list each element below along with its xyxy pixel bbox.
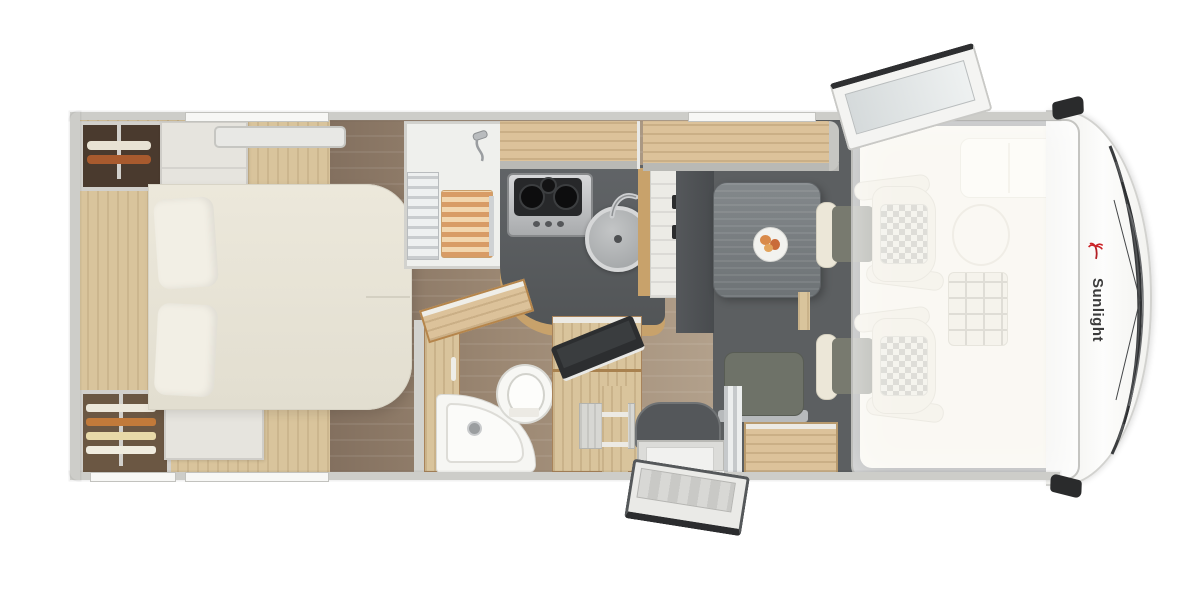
folded-clothes-light: [86, 404, 156, 412]
locker-lip: [500, 161, 637, 169]
bed-seam: [366, 296, 410, 298]
window-strip: [185, 112, 329, 122]
sink-faucet: [469, 423, 480, 434]
food-item: [764, 244, 773, 252]
toilet: [496, 364, 554, 424]
motorhome-floorplan: Sunlight: [0, 0, 1200, 600]
windshield-wipers-icon: [1100, 140, 1156, 460]
shower-glass-rail: [489, 196, 494, 256]
wardrobe-divider: [117, 125, 121, 179]
bed-pillow: [154, 302, 219, 397]
overhead-locker-kitchen: [500, 121, 640, 169]
stove-burner: [553, 184, 579, 210]
folded-clothes-rust: [86, 418, 156, 426]
cab-roof-overlay: [851, 119, 1080, 480]
hanging-clothes-light: [87, 141, 151, 150]
bathroom-wall: [414, 320, 424, 472]
cabinet-top-edge: [746, 424, 836, 429]
stove-burner-small: [540, 177, 557, 194]
fridge-side-panel: [638, 168, 650, 296]
locker-lip: [643, 163, 839, 171]
locker-seam: [162, 167, 246, 169]
bed-pillow: [153, 196, 219, 290]
shelf-edge: [602, 442, 628, 447]
shoe-cabinet: [744, 422, 838, 474]
shower-head-icon: [465, 130, 495, 164]
door-frame-pillar: [724, 386, 742, 472]
bedroom-skylight: [214, 126, 346, 148]
locker-end-cap: [829, 121, 839, 171]
window-strip: [185, 472, 329, 482]
stove-knob: [545, 221, 552, 227]
faucet-icon: [606, 188, 642, 220]
cabinet-handle: [451, 357, 456, 381]
hanging-clothes-rust: [87, 155, 151, 164]
toilet-lid-band: [509, 408, 539, 417]
wood-pillar: [798, 292, 810, 330]
stove-knob: [533, 221, 540, 227]
stove-knob: [557, 221, 564, 227]
overhead-locker-dinette: [643, 121, 839, 171]
folded-clothes-white: [86, 446, 156, 454]
kitchen-tall-unit: [676, 165, 714, 333]
shelf-edge: [602, 412, 628, 417]
shower-slat-mat: [441, 190, 493, 258]
gas-stove: [507, 173, 593, 237]
dinette-table: [713, 182, 821, 298]
wardrobe-hanging-top: [79, 121, 167, 191]
folded-clothes-tan: [86, 432, 156, 440]
door-window: [636, 468, 736, 513]
window-strip: [688, 112, 816, 122]
window-strip: [90, 472, 176, 482]
brand-text: Sunlight: [1087, 255, 1107, 365]
shower-glass-door: [407, 172, 439, 260]
food-plate: [753, 227, 788, 262]
side-cabinet-column: [602, 386, 628, 472]
wall-rear: [70, 112, 80, 480]
sink-drain: [614, 235, 622, 243]
shower-room: [404, 121, 510, 269]
